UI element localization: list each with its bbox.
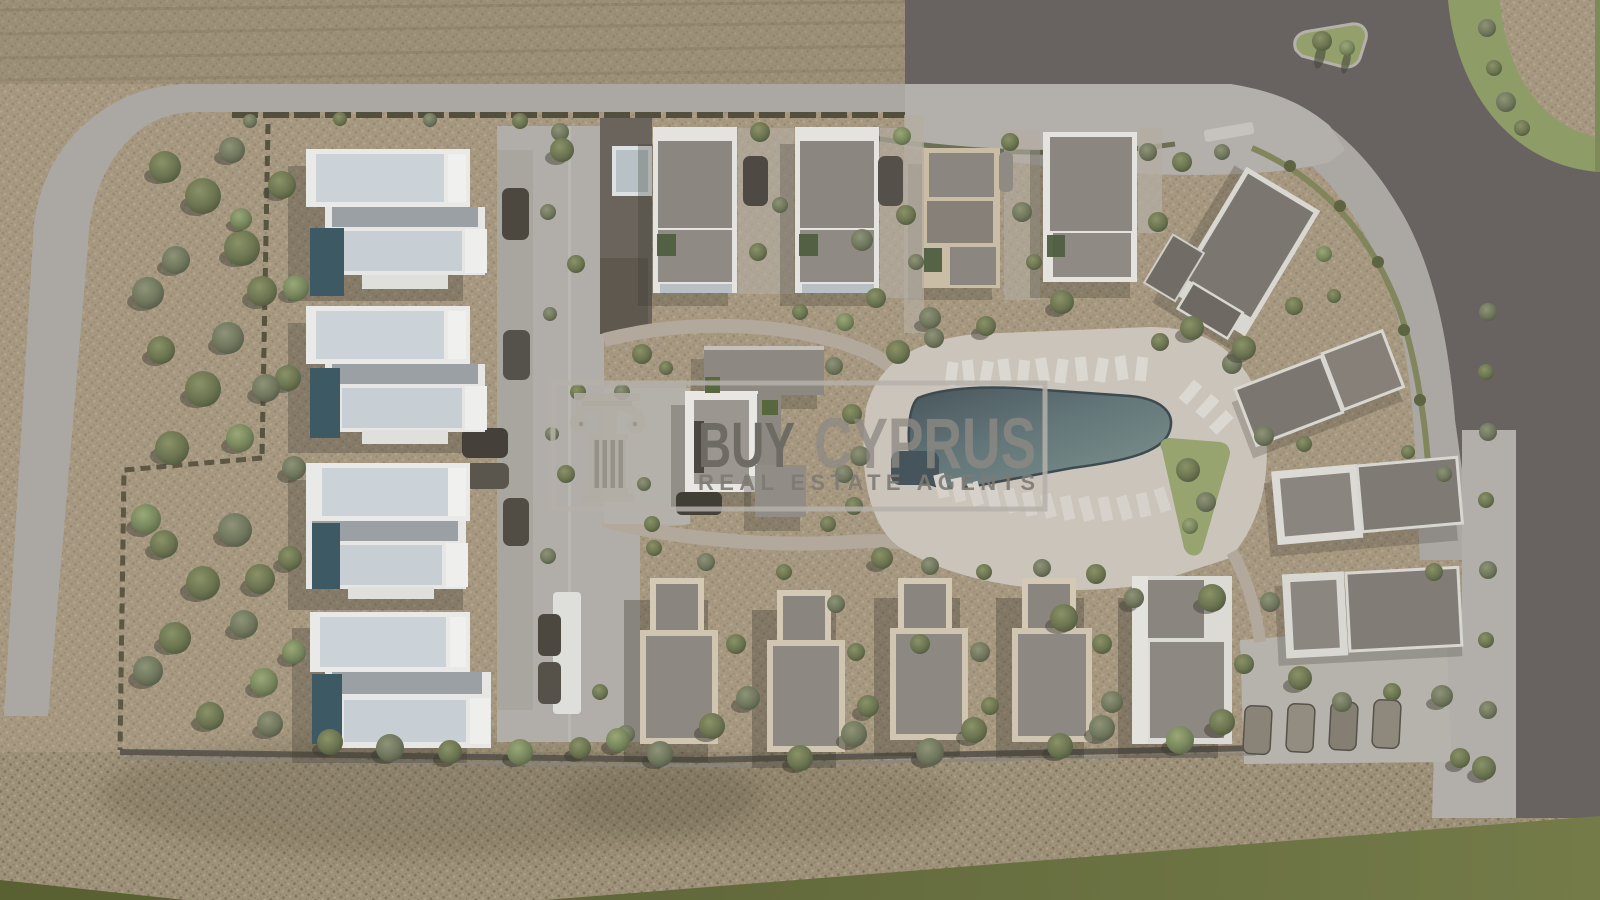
svg-text:REAL ESTATE AGENTS: REAL ESTATE AGENTS (698, 470, 1035, 495)
